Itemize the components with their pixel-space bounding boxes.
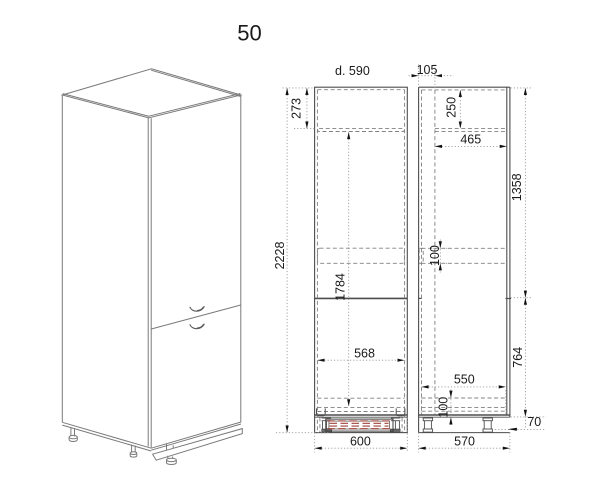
svg-text:d. 590: d. 590	[335, 64, 370, 78]
svg-text:273: 273	[290, 98, 304, 119]
svg-text:100: 100	[436, 397, 450, 418]
svg-text:550: 550	[454, 373, 475, 387]
svg-text:600: 600	[350, 435, 371, 449]
svg-text:570: 570	[454, 435, 475, 449]
svg-text:568: 568	[354, 346, 375, 360]
svg-text:1358: 1358	[510, 173, 524, 201]
svg-text:50: 50	[237, 21, 261, 46]
svg-text:764: 764	[511, 347, 525, 368]
svg-text:70: 70	[527, 415, 541, 429]
svg-text:100: 100	[428, 245, 442, 266]
svg-text:250: 250	[445, 97, 459, 118]
svg-text:105: 105	[417, 63, 438, 77]
svg-text:1784: 1784	[333, 273, 347, 301]
svg-text:465: 465	[460, 133, 481, 147]
svg-text:2228: 2228	[273, 242, 287, 270]
